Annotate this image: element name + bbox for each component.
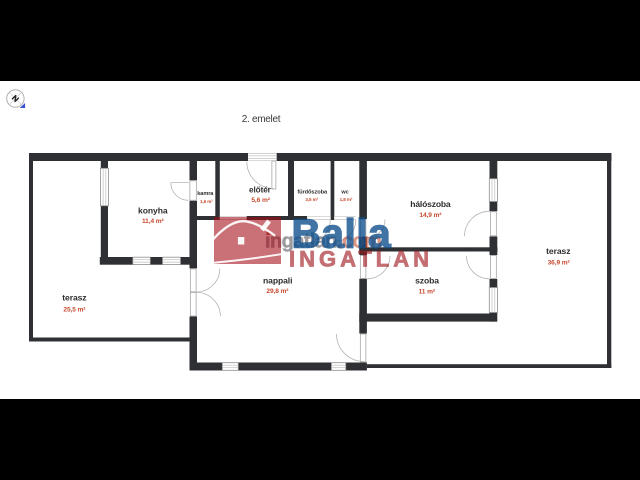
- svg-text:11 m²: 11 m²: [419, 288, 436, 295]
- svg-text:1,8 m²: 1,8 m²: [340, 197, 353, 202]
- svg-text:2. emelet: 2. emelet: [242, 114, 281, 125]
- svg-text:1,6 m²: 1,6 m²: [200, 199, 213, 204]
- svg-text:előtér: előtér: [249, 186, 272, 195]
- svg-text:36,9 m²: 36,9 m²: [548, 259, 571, 266]
- svg-text:terasz: terasz: [62, 293, 86, 303]
- svg-text:wc: wc: [340, 189, 348, 195]
- svg-text:14,9 m²: 14,9 m²: [419, 212, 442, 219]
- svg-text:fürdőszoba: fürdőszoba: [297, 189, 328, 195]
- svg-text:kamra: kamra: [197, 191, 214, 197]
- svg-text:terasz: terasz: [546, 246, 570, 256]
- svg-text:szoba: szoba: [415, 276, 439, 286]
- svg-text:nappali: nappali: [263, 276, 292, 286]
- svg-text:INGATLAN: INGATLAN: [289, 247, 433, 272]
- svg-text:konyha: konyha: [138, 206, 168, 216]
- svg-text:hálószoba: hálószoba: [410, 199, 451, 209]
- svg-text:3,5 m²: 3,5 m²: [305, 197, 318, 202]
- svg-text:25,5 m²: 25,5 m²: [63, 307, 86, 314]
- svg-text:11,4 m²: 11,4 m²: [142, 218, 165, 225]
- svg-text:5,6 m²: 5,6 m²: [251, 197, 270, 204]
- svg-text:29,8 m²: 29,8 m²: [266, 288, 289, 295]
